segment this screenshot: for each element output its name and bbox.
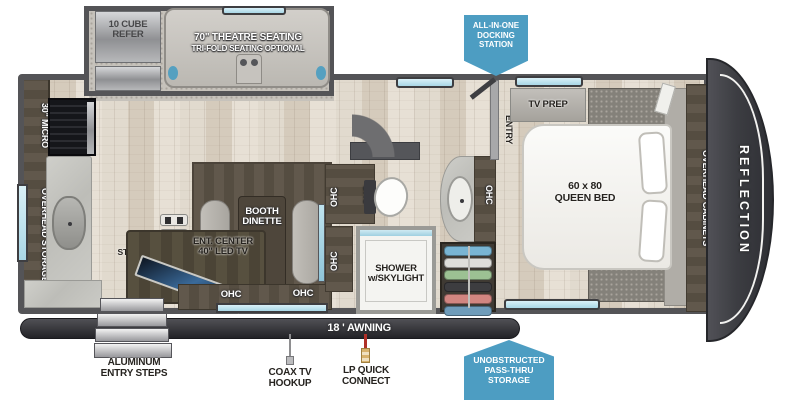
shower-label: SHOWERw/SKYLIGHT (360, 264, 432, 285)
rv-floorplan: 18 ' AWNING 30" MICRO OVERHEAD STORAGE S… (0, 0, 800, 400)
ohc-label-vanity: OHC (477, 172, 493, 218)
model-name-label: REFLECTION (730, 60, 750, 340)
wardrobe-rod (468, 246, 470, 308)
theatre-seating-label-2: TRI-FOLD SEATING OPTIONAL (158, 45, 338, 54)
coax-hookup-icon (289, 334, 291, 358)
queen-bed-label: 60 x 80QUEEN BED (530, 181, 640, 204)
entry-steps-label: ALUMINUMENTRY STEPS (82, 357, 186, 379)
front-cap: REFLECTION (706, 58, 774, 342)
bath-door-arc (352, 97, 400, 157)
lp-connect-label: LP QUICKCONNECT (330, 365, 402, 387)
ohc-label-bottom-left: OHC (206, 290, 256, 300)
ohc-label-bath-3: OHC (330, 240, 346, 282)
kitchen-counter-bottom (24, 280, 102, 308)
lp-connect-icon (364, 334, 367, 349)
theatre-armrest-right (316, 66, 326, 80)
cooktop (48, 98, 96, 156)
ent-center-label: ENT. CENTER40" LED TV (168, 237, 278, 258)
shower: SHOWERw/SKYLIGHT (356, 226, 436, 314)
kitchen-sink (52, 196, 86, 250)
refrigerator-label: 10 CUBEREFER (95, 20, 161, 41)
entry-steps (94, 298, 170, 356)
sink-drain (68, 222, 72, 226)
tv-prep-label: TV PREP (517, 100, 579, 110)
bed-bench-bottom (588, 266, 670, 302)
theatre-console (236, 54, 262, 84)
docking-station-badge: ALL-IN-ONE DOCKING STATION (464, 15, 528, 76)
bath-sink (447, 176, 473, 222)
microwave-label: 30" MICRO (25, 88, 49, 162)
theatre-seating-label-1: 70" THEATRE SEATING (158, 32, 338, 43)
booth-dinette-label: BOOTHDINETTE (200, 207, 324, 228)
coax-hookup-label: COAX TVHOOKUP (256, 367, 324, 389)
living-bottom-window (216, 303, 328, 313)
bed-pillow-bottom (638, 199, 668, 263)
top-window-bedroom (515, 76, 583, 87)
slideout-window (222, 6, 286, 15)
ohc-label-bath-1: OHC (330, 176, 346, 218)
pass-thru-storage-badge: UNOBSTRUCTED PASS-THRU STORAGE (464, 340, 554, 400)
dinette-window-accent (318, 204, 325, 282)
awning-label: 18 ' AWNING (327, 322, 391, 334)
wardrobe (440, 242, 496, 312)
cooktop-trim (87, 102, 94, 154)
shower-skylight-strip (360, 230, 432, 236)
bed-pillow-top (638, 131, 668, 195)
coax-hookup-connector (286, 356, 294, 365)
ohc-label-bottom-right: OHC (278, 289, 328, 299)
bottom-window-bedroom (504, 299, 600, 310)
slideout-cabinet (95, 66, 161, 91)
top-window-bath (396, 77, 454, 88)
theatre-armrest-left (168, 66, 178, 80)
lp-connect-nozzle (361, 348, 370, 363)
